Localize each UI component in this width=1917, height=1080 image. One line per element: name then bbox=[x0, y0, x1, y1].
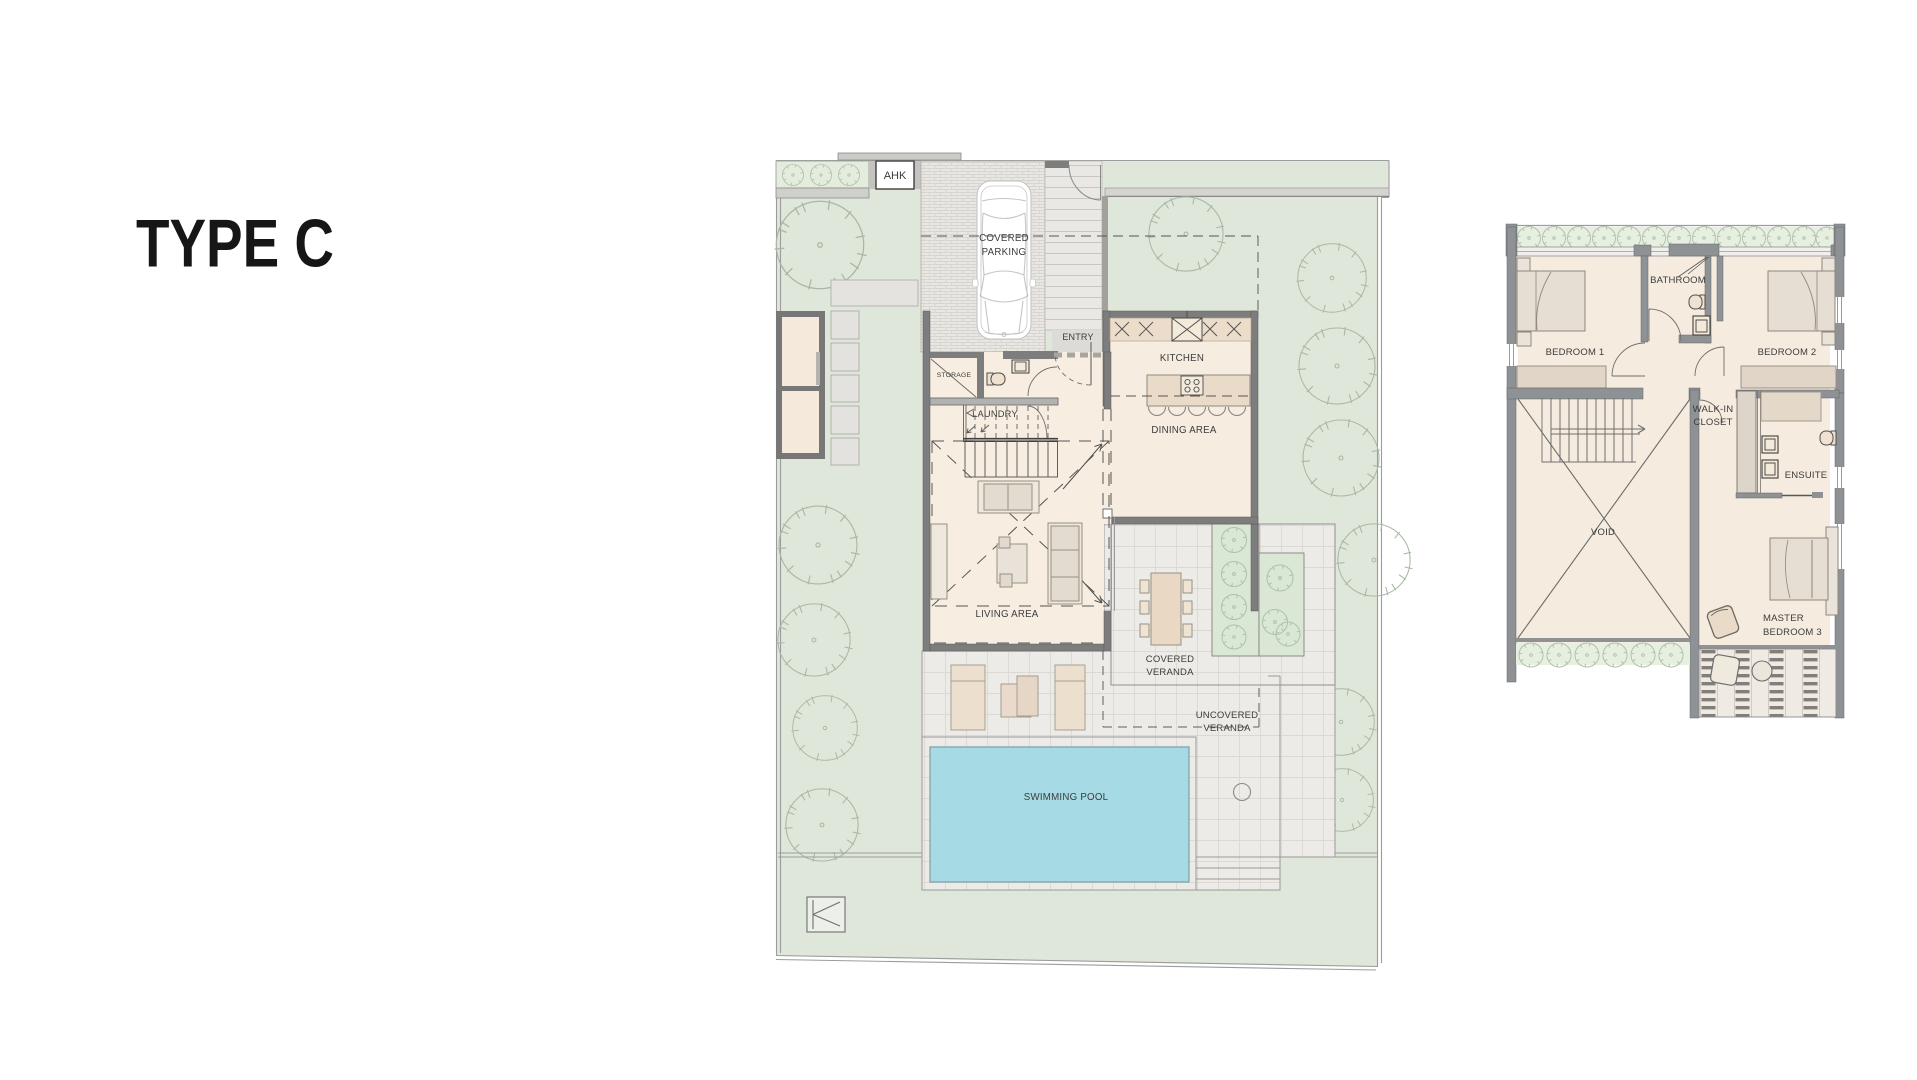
svg-text:COVERED: COVERED bbox=[979, 233, 1029, 244]
svg-text:STORAGE: STORAGE bbox=[937, 372, 972, 379]
svg-text:DINING AREA: DINING AREA bbox=[1151, 425, 1216, 436]
svg-text:AHK: AHK bbox=[884, 170, 907, 182]
svg-text:CLOSET: CLOSET bbox=[1693, 417, 1732, 428]
svg-text:LAUNDRY: LAUNDRY bbox=[972, 409, 1018, 419]
svg-text:UNCOVERED: UNCOVERED bbox=[1196, 710, 1259, 721]
svg-text:LIVING AREA: LIVING AREA bbox=[975, 609, 1038, 620]
svg-text:KITCHEN: KITCHEN bbox=[1160, 353, 1204, 364]
svg-text:VERANDA: VERANDA bbox=[1203, 723, 1251, 734]
svg-text:WALK-IN: WALK-IN bbox=[1693, 404, 1734, 415]
svg-text:SWIMMING POOL: SWIMMING POOL bbox=[1024, 792, 1109, 803]
svg-text:ENSUITE: ENSUITE bbox=[1785, 470, 1828, 481]
svg-text:BEDROOM 2: BEDROOM 2 bbox=[1758, 347, 1817, 358]
svg-text:COVERED: COVERED bbox=[1146, 654, 1194, 665]
svg-text:MASTER: MASTER bbox=[1763, 613, 1804, 624]
svg-text:VERANDA: VERANDA bbox=[1146, 667, 1194, 678]
svg-text:VOID: VOID bbox=[1591, 527, 1615, 538]
svg-text:BEDROOM 3: BEDROOM 3 bbox=[1763, 627, 1822, 638]
svg-text:BEDROOM 1: BEDROOM 1 bbox=[1546, 347, 1605, 358]
svg-text:PARKING: PARKING bbox=[982, 247, 1027, 258]
svg-text:ENTRY: ENTRY bbox=[1062, 332, 1093, 342]
svg-text:TYPE C: TYPE C bbox=[136, 206, 334, 282]
